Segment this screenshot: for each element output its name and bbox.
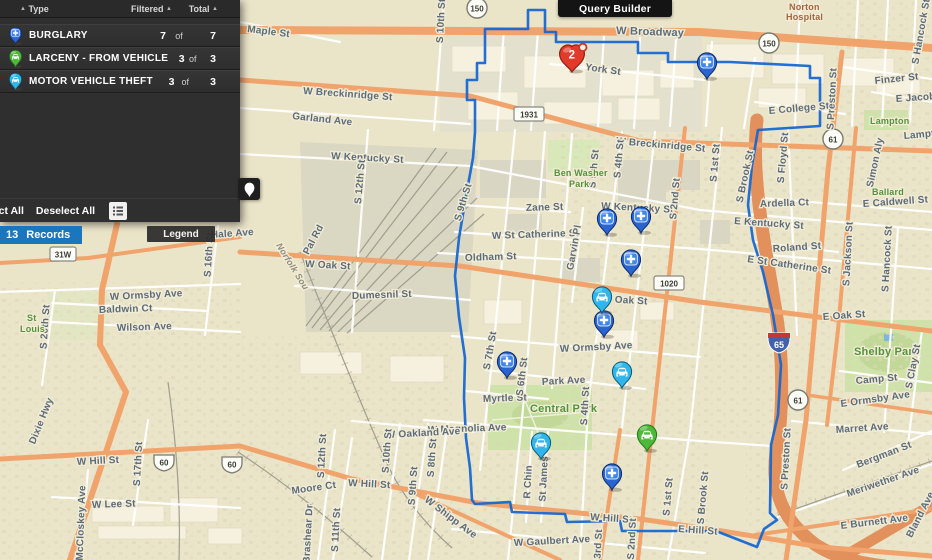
svg-text:61: 61 xyxy=(829,136,838,145)
svg-text:150: 150 xyxy=(470,5,484,14)
svg-text:60: 60 xyxy=(228,461,237,470)
street-label: W Lee St xyxy=(92,498,137,511)
street-label: R Chin xyxy=(522,465,535,499)
route-shield: 1020 xyxy=(654,276,684,290)
of-label: of xyxy=(166,31,192,41)
larceny-pin-icon xyxy=(8,49,23,68)
rail-yard-area xyxy=(300,142,478,332)
filtered-count: 7 xyxy=(140,30,166,42)
type-label: MOTOR VEHICLE THEFT xyxy=(29,76,153,87)
sort-caret-icon: ▲ xyxy=(212,6,218,12)
of-label: of xyxy=(174,77,196,87)
column-header-total[interactable]: Total ▲ xyxy=(189,4,218,14)
records-text: Records xyxy=(26,229,70,241)
deselect-all-button[interactable]: Deselect All xyxy=(36,205,95,217)
list-view-button[interactable] xyxy=(109,202,127,220)
total-count: 7 xyxy=(192,30,216,42)
route-shield: 61 xyxy=(823,129,843,149)
street-label: Lampton xyxy=(870,116,909,126)
type-row-motor-vehicle-theft[interactable]: MOTOR VEHICLE THEFT 3 of 3 xyxy=(0,70,240,93)
sort-caret-icon: ▲ xyxy=(20,6,26,12)
type-row-burglary[interactable]: BURGLARY 7 of 7 xyxy=(0,24,240,47)
panel-controls: Select All Deselect All xyxy=(0,198,240,222)
column-header-filtered[interactable]: Filtered ▲ xyxy=(131,4,172,14)
type-row-larceny[interactable]: LARCENY - FROM VEHICLE 3 of 3 xyxy=(0,47,240,70)
query-builder-button[interactable]: Query Builder xyxy=(558,0,672,17)
route-shield: 31W xyxy=(50,247,76,261)
records-count: 13 xyxy=(6,229,18,241)
type-label: BURGLARY xyxy=(29,30,140,41)
street-label: S 4th St xyxy=(579,386,592,426)
route-shield: 61 xyxy=(788,390,808,410)
filtered-count: 3 xyxy=(168,53,184,65)
street-label: Baldwin Ct xyxy=(99,303,153,316)
street-label: S 11th St xyxy=(330,507,343,552)
svg-text:150: 150 xyxy=(762,40,776,49)
total-count: 3 xyxy=(196,76,216,88)
of-label: of xyxy=(185,54,201,64)
svg-text:1020: 1020 xyxy=(660,280,678,289)
total-count: 3 xyxy=(201,53,216,65)
street-label: Park Ave xyxy=(542,375,586,388)
list-icon xyxy=(112,205,124,217)
street-label: S 2nd St xyxy=(626,517,639,560)
svg-text:60: 60 xyxy=(160,459,169,468)
street-label: S 17th St xyxy=(132,441,145,487)
panel-pin-toggle-button[interactable] xyxy=(238,178,260,200)
street-label: Wilson Ave xyxy=(117,321,173,334)
street-label: Louis xyxy=(20,324,45,334)
svg-text:61: 61 xyxy=(794,397,803,406)
type-label: LARCENY - FROM VEHICLE xyxy=(29,53,168,64)
route-shield: 60 xyxy=(154,455,174,471)
street-label: Dumesnil St xyxy=(352,289,413,302)
cluster-count: 2 xyxy=(569,50,575,62)
route-shield: 150 xyxy=(467,0,487,18)
burglary-pin-icon xyxy=(8,26,23,45)
legend-button[interactable]: Legend xyxy=(147,226,215,242)
street-label: Hospital xyxy=(786,12,823,22)
street-label: W Hill St xyxy=(348,478,391,491)
svg-text:1931: 1931 xyxy=(520,111,538,120)
select-all-button[interactable]: Select All xyxy=(0,205,24,217)
street-label: Oldham St xyxy=(465,251,518,264)
route-shield: 150 xyxy=(759,33,779,53)
records-badge: 13 Records xyxy=(0,226,82,244)
street-label: W Hill St xyxy=(77,455,120,468)
map-pin-icon xyxy=(243,181,256,198)
street-label: Zane St xyxy=(526,202,564,214)
street-label: St xyxy=(27,313,36,323)
street-label: Ben Washer xyxy=(554,168,608,178)
street-label: Ardella Ct xyxy=(760,197,810,210)
type-rows: BURGLARY 7 of 7 LARCENY - FROM VEHICLE 3… xyxy=(0,24,240,93)
sort-caret-icon: ▲ xyxy=(166,6,172,12)
motor-vehicle-theft-pin-icon xyxy=(8,72,23,91)
street-label: S 3rd St xyxy=(592,528,605,560)
cluster-badge-icon xyxy=(579,44,586,51)
street-label: Park xyxy=(569,179,590,189)
column-header-type[interactable]: ▲ Type xyxy=(20,4,49,14)
panel-header: ▲ Type Filtered ▲ Total ▲ xyxy=(0,0,240,18)
crime-type-panel: ▲ Type Filtered ▲ Total ▲ BURGLARY 7 of … xyxy=(0,0,240,222)
route-shield: 1931 xyxy=(514,107,544,121)
route-shield: 60 xyxy=(222,457,242,473)
street-label: S 12th St xyxy=(316,433,329,479)
street-label: Norton xyxy=(789,2,820,12)
svg-text:31W: 31W xyxy=(55,251,72,260)
svg-text:65: 65 xyxy=(774,340,784,350)
filtered-count: 3 xyxy=(153,76,175,88)
street-label: W Broadway xyxy=(616,25,685,39)
